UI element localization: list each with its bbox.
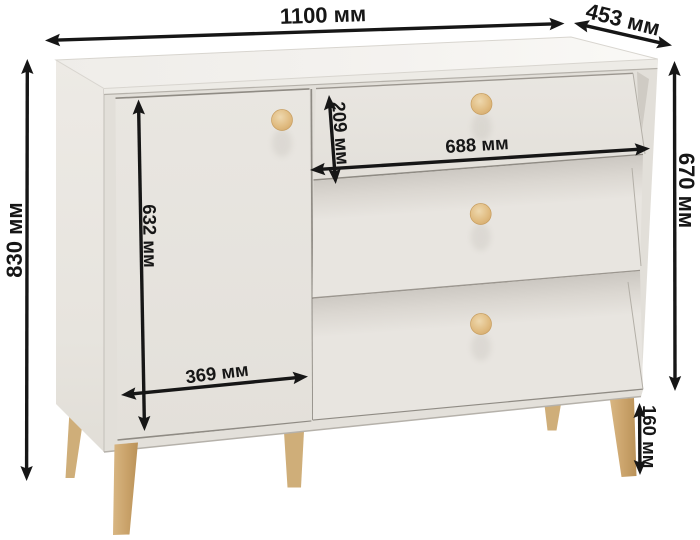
svg-text:830 мм: 830 мм [2,202,27,277]
svg-text:670 мм: 670 мм [674,153,699,228]
svg-text:688 мм: 688 мм [445,132,510,157]
svg-text:1100 мм: 1100 мм [279,1,366,29]
svg-text:160 мм: 160 мм [639,405,660,468]
svg-text:632 мм: 632 мм [139,204,161,268]
